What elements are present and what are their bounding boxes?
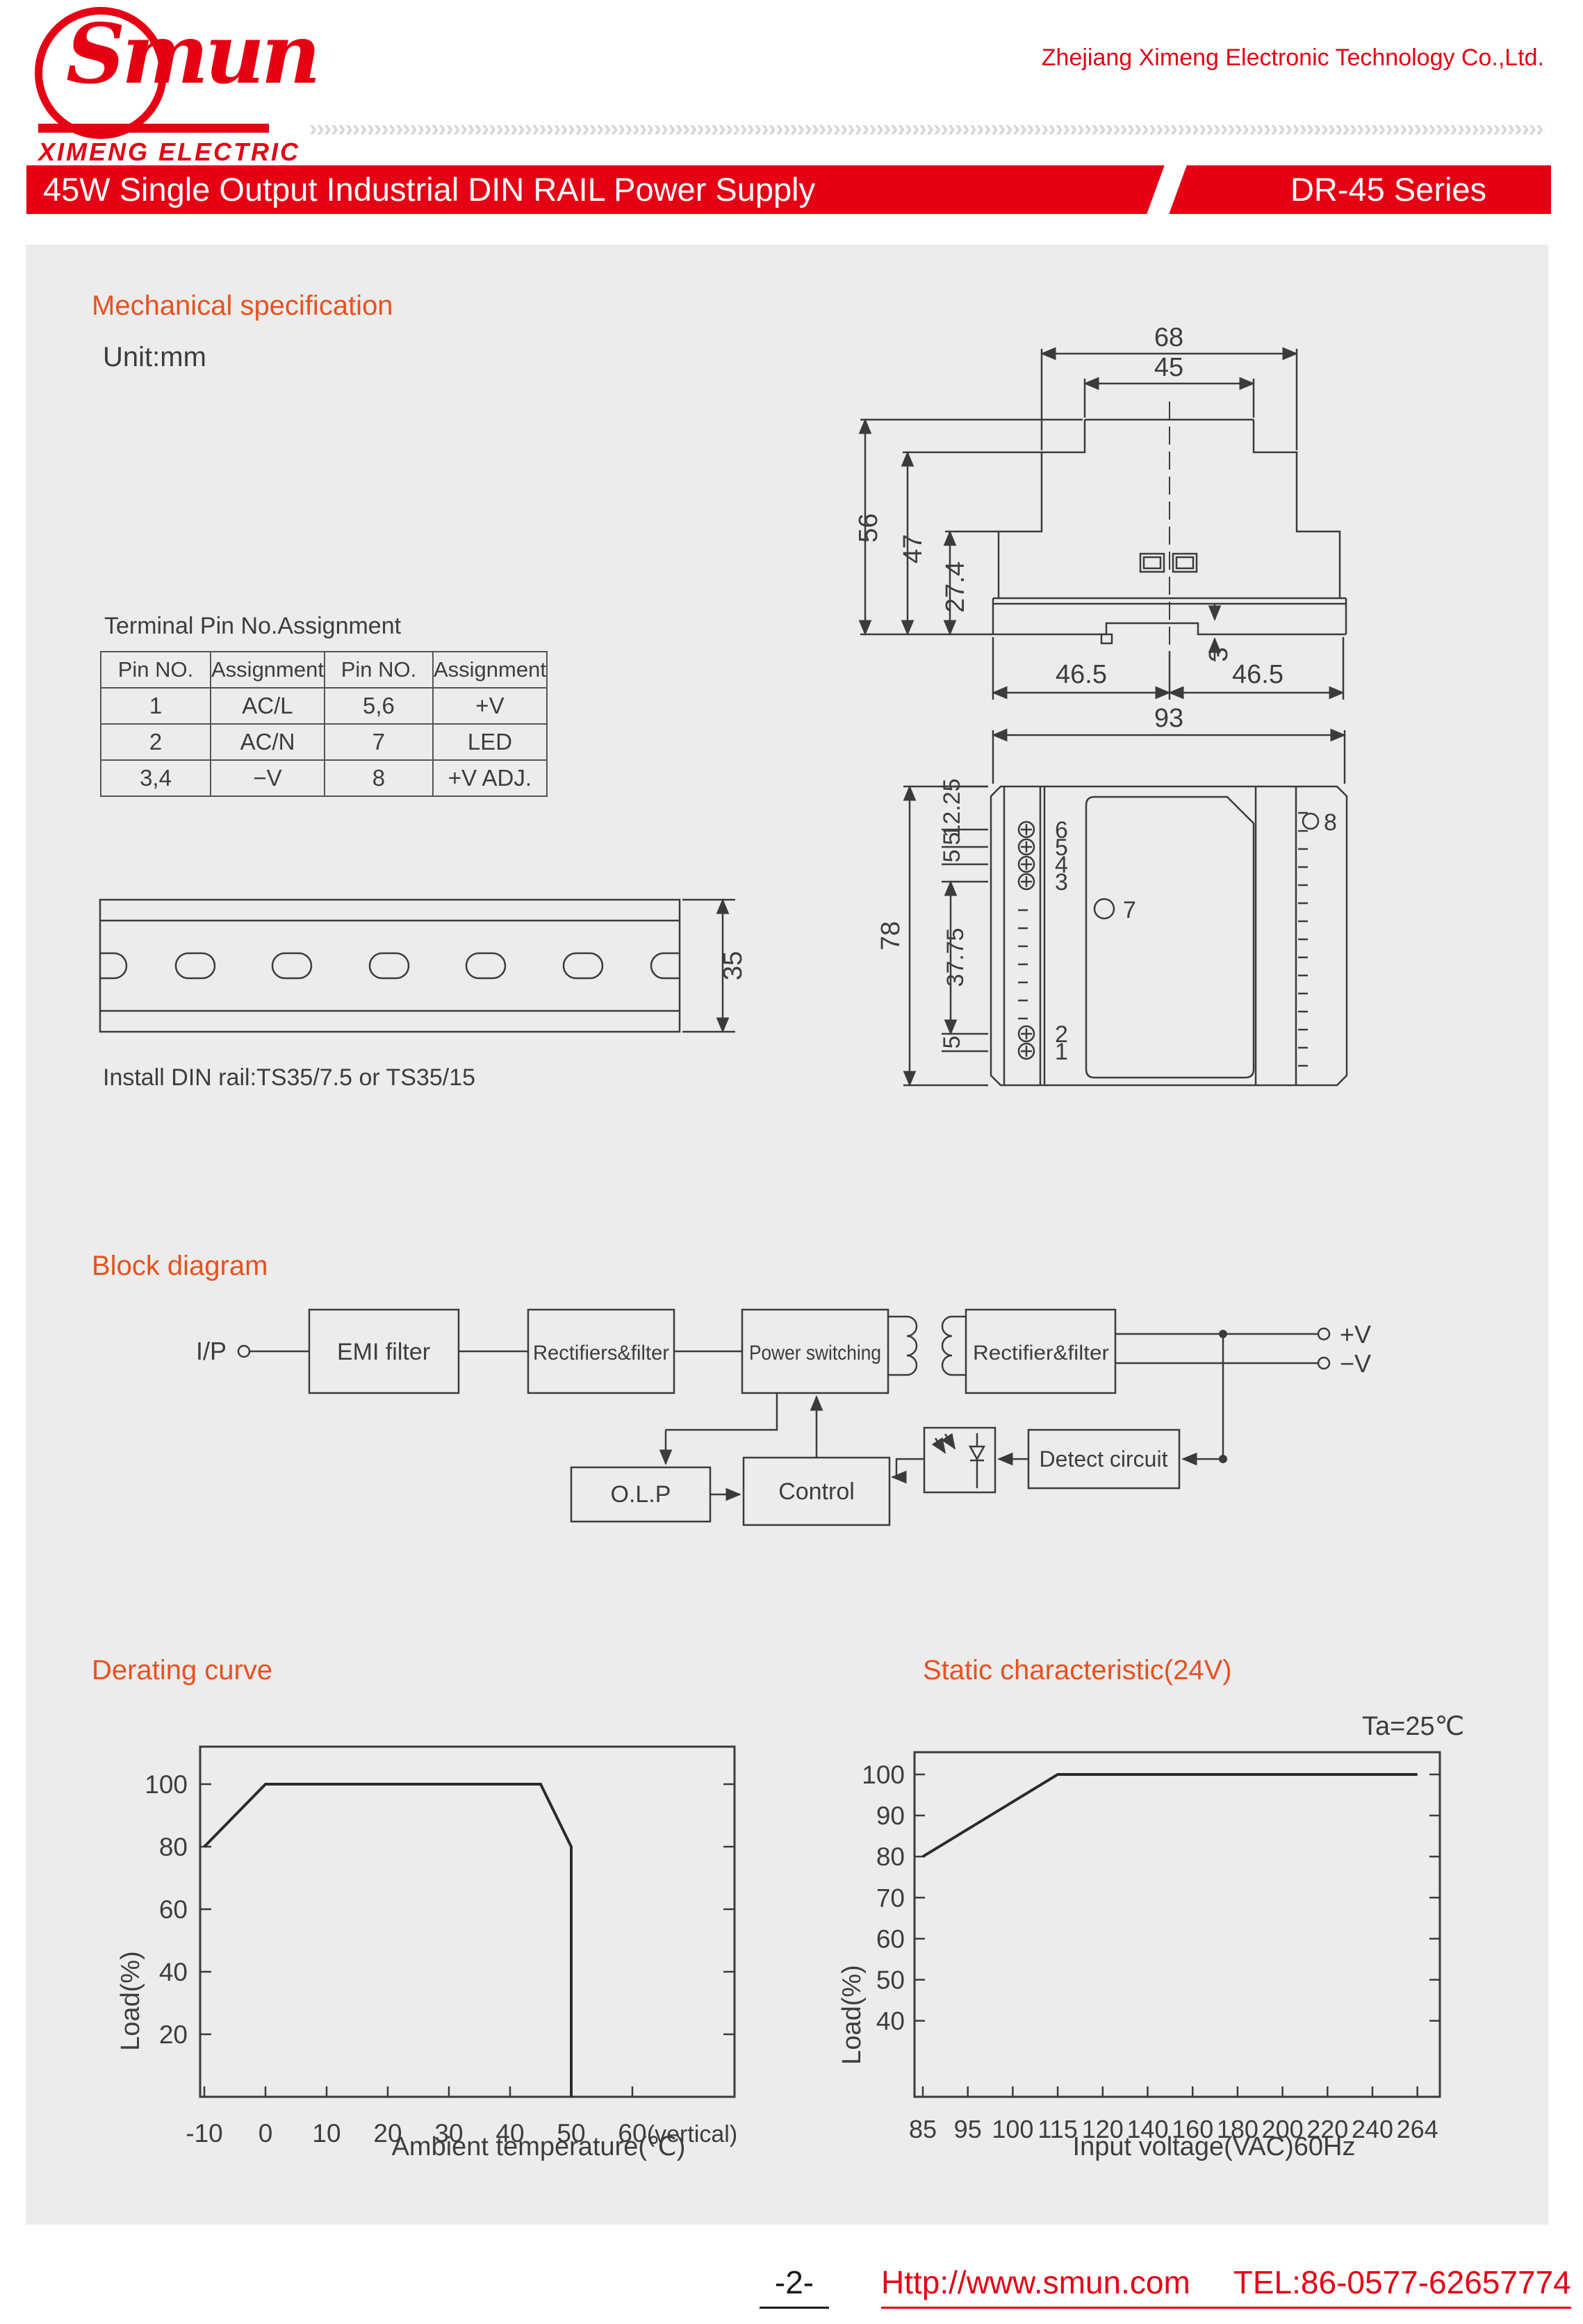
cell: 3,4 [101, 760, 211, 796]
output-plus-v: +V [1340, 1320, 1371, 1349]
logo-underline [38, 124, 269, 133]
cell: +V ADJ. [433, 760, 547, 796]
svg-text:85: 85 [909, 2115, 937, 2143]
input-label: I/P [196, 1337, 227, 1365]
svg-text:95: 95 [954, 2115, 982, 2143]
title-banner: 45W Single Output Industrial DIN RAIL Po… [26, 165, 1551, 214]
svg-text:100: 100 [862, 1761, 905, 1789]
block-diagram-title: Block diagram [92, 1251, 268, 1282]
col-header: Assignment [433, 652, 547, 688]
company-name: Zhejiang Ximeng Electronic Technology Co… [764, 44, 1544, 72]
dim-5a: 5 [939, 832, 965, 846]
telephone: TEL:86-0577-62657774 [1233, 2264, 1571, 2300]
adj-label: 8 [1324, 809, 1337, 836]
cell: AC/L [211, 688, 325, 724]
block-rectifier-filter: Rectifier&filter [973, 1342, 1109, 1365]
side-view-drawing: 68 45 56 47 27.4 3 46.5 46.5 [834, 320, 1390, 709]
block-control: Control [778, 1478, 855, 1505]
smun-logo: Smun XIMENG ELECTRIC [0, 0, 306, 167]
dim-37-75: 37.75 [942, 928, 969, 987]
svg-text:40: 40 [159, 1958, 188, 1986]
page-number: -2- [760, 2264, 829, 2309]
svg-text:80: 80 [159, 1833, 188, 1861]
svg-text:Load(%): Load(%) [837, 1965, 867, 2065]
svg-text:Load(%): Load(%) [116, 1951, 145, 2051]
cell: 1 [101, 688, 211, 724]
svg-text:60: 60 [159, 1895, 188, 1924]
dim-47: 47 [899, 534, 928, 563]
din-rail-drawing: 35 Install DIN rail:TS35/7.5 or TS35/15 [83, 882, 778, 1105]
svg-text:90: 90 [876, 1802, 905, 1830]
dim-68: 68 [1154, 323, 1183, 352]
svg-text:50: 50 [876, 1966, 905, 1995]
cell: 7 [325, 724, 433, 760]
cell: 8 [325, 760, 433, 796]
table-row: 2 AC/N 7 LED [101, 724, 547, 760]
terminal-1: 1 [1055, 1039, 1068, 1065]
dim-35: 35 [719, 951, 748, 980]
dim-93: 93 [1154, 704, 1183, 733]
terminal-3: 3 [1055, 869, 1068, 896]
mechanical-spec-title: Mechanical specification [92, 290, 393, 322]
pin-table-title: Terminal Pin No.Assignment [104, 613, 401, 640]
dim-27-4: 27.4 [941, 561, 970, 613]
series-label: DR-45 Series [1208, 165, 1569, 214]
svg-text:80: 80 [876, 1843, 905, 1871]
derating-chart: 20406080100-100102030405060(vertical)Amb… [83, 1695, 778, 2182]
datasheet-page: Smun XIMENG ELECTRIC Zhejiang Ximeng Ele… [0, 0, 1583, 2324]
static-characteristic-chart: 4050607080901008595100115120140160180200… [820, 1695, 1515, 2182]
dim-3: 3 [1204, 647, 1233, 661]
cell: 5,6 [325, 688, 433, 724]
cell: 2 [101, 724, 211, 760]
table-row: 1 AC/L 5,6 +V [101, 688, 547, 724]
static-characteristic-title: Static characteristic(24V) [923, 1655, 1232, 1686]
dim-12-25: 12.25 [939, 778, 965, 837]
cell: LED [433, 724, 547, 760]
led-indicator-label: 7 [1123, 897, 1136, 923]
cell: −V [211, 760, 325, 796]
front-view-drawing: 93 78 6 5 4 3 2 1 7 8 12.25 [869, 695, 1397, 1126]
svg-text:240: 240 [1352, 2115, 1393, 2143]
svg-text:10: 10 [312, 2119, 341, 2148]
pin-assignment-table: Pin NO. Assignment Pin NO. Assignment 1 … [100, 651, 548, 797]
din-rail-note: Install DIN rail:TS35/7.5 or TS35/15 [103, 1064, 475, 1091]
dim-5c: 5 [939, 1036, 965, 1049]
col-header: Pin NO. [325, 652, 433, 688]
svg-text:100: 100 [145, 1770, 188, 1799]
svg-text:-10: -10 [186, 2119, 222, 2148]
block-power-switching: Power switching [749, 1342, 881, 1365]
svg-text:40: 40 [876, 2007, 905, 2036]
block-rectifiers-filter: Rectifiers&filter [533, 1342, 669, 1365]
col-header: Pin NO. [101, 652, 211, 688]
block-olp: O.L.P [611, 1481, 671, 1508]
dim-56: 56 [854, 513, 883, 543]
dim-45: 45 [1154, 353, 1183, 382]
dim-78: 78 [876, 921, 905, 950]
svg-text:Ambient temperature(℃): Ambient temperature(℃) [392, 2132, 686, 2161]
svg-text:264: 264 [1397, 2115, 1438, 2143]
cell: AC/N [211, 724, 325, 760]
table-row: 3,4 −V 8 +V ADJ. [101, 760, 547, 796]
svg-text:60: 60 [876, 1925, 905, 1953]
derating-curve-title: Derating curve [92, 1655, 272, 1686]
logo-wordmark: Smun [66, 6, 318, 102]
dim-5b: 5 [939, 850, 965, 863]
block-detect-circuit: Detect circuit [1040, 1447, 1168, 1472]
svg-text:Input voltage(VAC)60Hz: Input voltage(VAC)60Hz [1073, 2132, 1356, 2161]
output-minus-v: −V [1340, 1349, 1371, 1378]
col-header: Assignment [211, 652, 325, 688]
svg-text:100: 100 [992, 2115, 1033, 2143]
block-emi-filter: EMI filter [337, 1339, 430, 1365]
dim-46-5-left: 46.5 [1056, 660, 1107, 689]
banner-slash [1147, 165, 1186, 214]
footer-link[interactable]: Http://www.smun.comTEL:86-0577-62657774 [881, 2264, 1571, 2309]
logo-subtitle: XIMENG ELECTRIC [38, 138, 300, 167]
svg-text:115: 115 [1037, 2115, 1077, 2143]
page-title: 45W Single Output Industrial DIN RAIL Po… [43, 165, 815, 214]
svg-text:70: 70 [876, 1884, 905, 1912]
chevron-band: ››››››››››››››››››››››››››››››››››››››››… [309, 117, 1545, 140]
cell: +V [433, 688, 547, 724]
block-diagram: I/P EMI filter Rectifiers&filter Power s… [174, 1292, 1390, 1570]
website-url[interactable]: Http://www.smun.com [881, 2264, 1190, 2300]
svg-text:0: 0 [259, 2119, 273, 2148]
dim-46-5-right: 46.5 [1232, 660, 1283, 689]
svg-text:20: 20 [159, 2020, 188, 2049]
unit-label: Unit:mm [103, 342, 206, 373]
